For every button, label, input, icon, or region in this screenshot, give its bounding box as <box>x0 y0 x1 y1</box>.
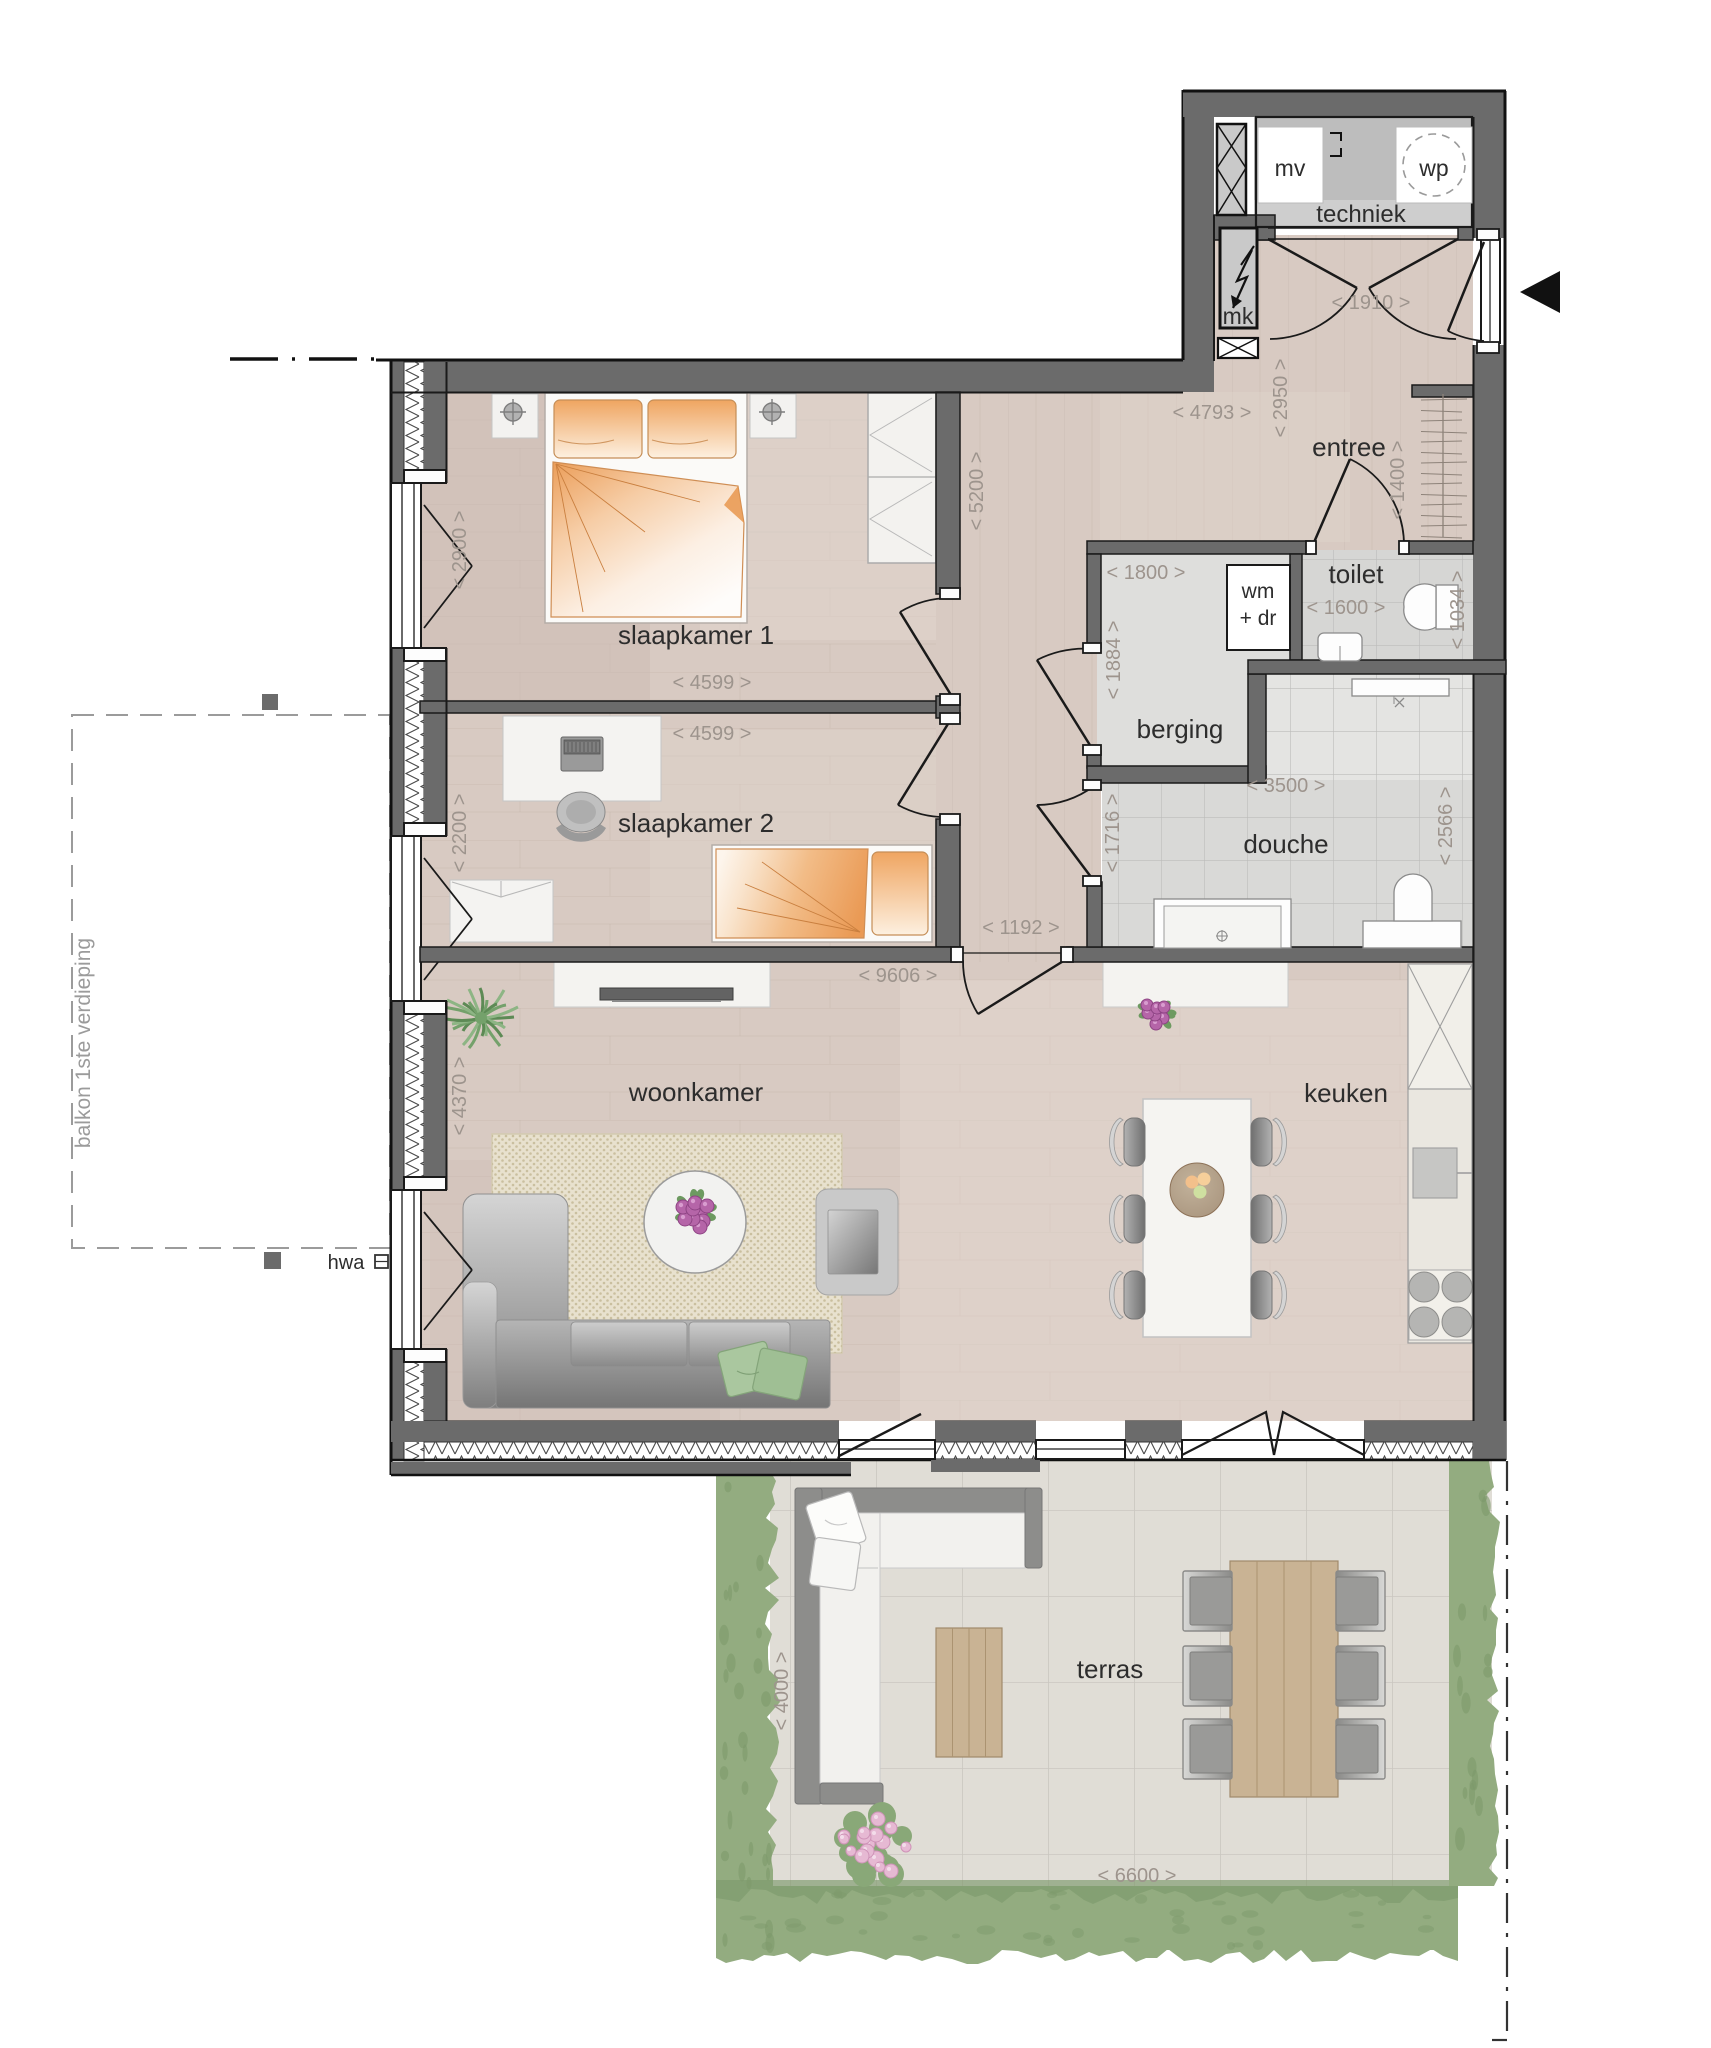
svg-text:< 2950 >: < 2950 > <box>1270 359 1292 438</box>
svg-text:techniek: techniek <box>1316 201 1406 228</box>
svg-text:slaapkamer 1: slaapkamer 1 <box>618 620 774 650</box>
svg-text:wm: wm <box>1241 580 1275 603</box>
svg-text:mv: mv <box>1275 155 1306 181</box>
svg-text:woonkamer: woonkamer <box>628 1077 764 1107</box>
svg-text:< 4599 >: < 4599 > <box>673 723 752 745</box>
svg-text:< 1192 >: < 1192 > <box>982 917 1059 939</box>
svg-text:mk: mk <box>1223 303 1254 329</box>
svg-text:wp: wp <box>1418 155 1448 181</box>
svg-text:terras: terras <box>1077 1654 1143 1684</box>
svg-text:< 4793 >: < 4793 > <box>1173 402 1252 424</box>
svg-text:+ dr: + dr <box>1240 607 1277 630</box>
svg-text:< 3500 >: < 3500 > <box>1247 775 1326 797</box>
svg-text:< 6600 >: < 6600 > <box>1098 1865 1177 1887</box>
svg-text:< 1910 >: < 1910 > <box>1332 292 1411 314</box>
svg-text:< 1716 >: < 1716 > <box>1102 794 1124 873</box>
svg-text:balkon 1ste verdieping: balkon 1ste verdieping <box>72 938 95 1148</box>
svg-text:slaapkamer 2: slaapkamer 2 <box>618 808 774 838</box>
svg-text:toilet: toilet <box>1329 559 1385 589</box>
svg-text:< 1800 >: < 1800 > <box>1107 562 1186 584</box>
svg-text:< 2566 >: < 2566 > <box>1435 787 1457 866</box>
svg-text:< 1884 >: < 1884 > <box>1103 621 1125 700</box>
svg-text:hwa: hwa <box>328 1252 366 1274</box>
svg-text:keuken: keuken <box>1304 1078 1388 1108</box>
svg-text:< 9606 >: < 9606 > <box>859 965 938 987</box>
svg-text:< 4000 >: < 4000 > <box>771 1652 793 1731</box>
svg-text:< 4370 >: < 4370 > <box>449 1057 471 1136</box>
svg-text:< 1600 >: < 1600 > <box>1307 597 1386 619</box>
svg-text:< 1034 >: < 1034 > <box>1447 571 1469 650</box>
svg-text:< 4599 >: < 4599 > <box>673 672 752 694</box>
svg-text:berging: berging <box>1137 714 1224 744</box>
svg-text:< 1400 >: < 1400 > <box>1387 441 1409 520</box>
svg-text:< 2900 >: < 2900 > <box>449 511 471 590</box>
svg-text:entree: entree <box>1312 432 1386 462</box>
svg-text:< 2200 >: < 2200 > <box>449 794 471 873</box>
svg-text:douche: douche <box>1243 829 1328 859</box>
svg-text:< 5200 >: < 5200 > <box>966 452 988 531</box>
